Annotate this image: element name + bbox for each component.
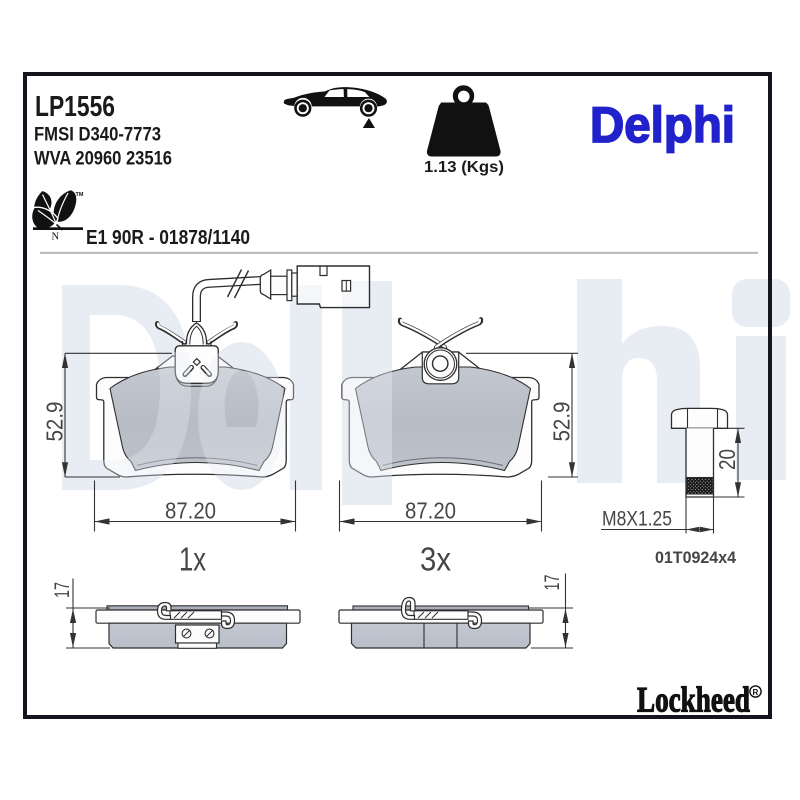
svg-text:LP1556: LP1556 (35, 91, 115, 123)
svg-text:E1 90R - 01878/1140: E1 90R - 01878/1140 (86, 226, 250, 249)
svg-text:N: N (52, 232, 60, 243)
svg-text:1.13 (Kgs): 1.13 (Kgs) (424, 159, 504, 176)
svg-text:20: 20 (714, 449, 740, 470)
svg-text:52.9: 52.9 (548, 402, 574, 442)
svg-text:Delphi: Delphi (590, 97, 735, 153)
svg-text:1x: 1x (179, 541, 206, 578)
svg-text:TM: TM (76, 192, 84, 198)
svg-text:FMSI D340-7773: FMSI D340-7773 (34, 125, 161, 146)
svg-text:Lockheed: Lockheed (637, 680, 750, 720)
svg-text:3x: 3x (420, 541, 451, 578)
svg-text:R: R (753, 688, 759, 697)
svg-text:87.20: 87.20 (165, 498, 216, 524)
svg-text:52.9: 52.9 (41, 402, 67, 442)
svg-text:01T0924x4: 01T0924x4 (655, 549, 737, 567)
svg-text:17: 17 (541, 575, 564, 591)
svg-text:M8X1.25: M8X1.25 (602, 507, 672, 531)
svg-text:WVA 20960 23516: WVA 20960 23516 (34, 149, 172, 170)
svg-text:87.20: 87.20 (405, 498, 456, 524)
svg-text:17: 17 (51, 582, 74, 598)
